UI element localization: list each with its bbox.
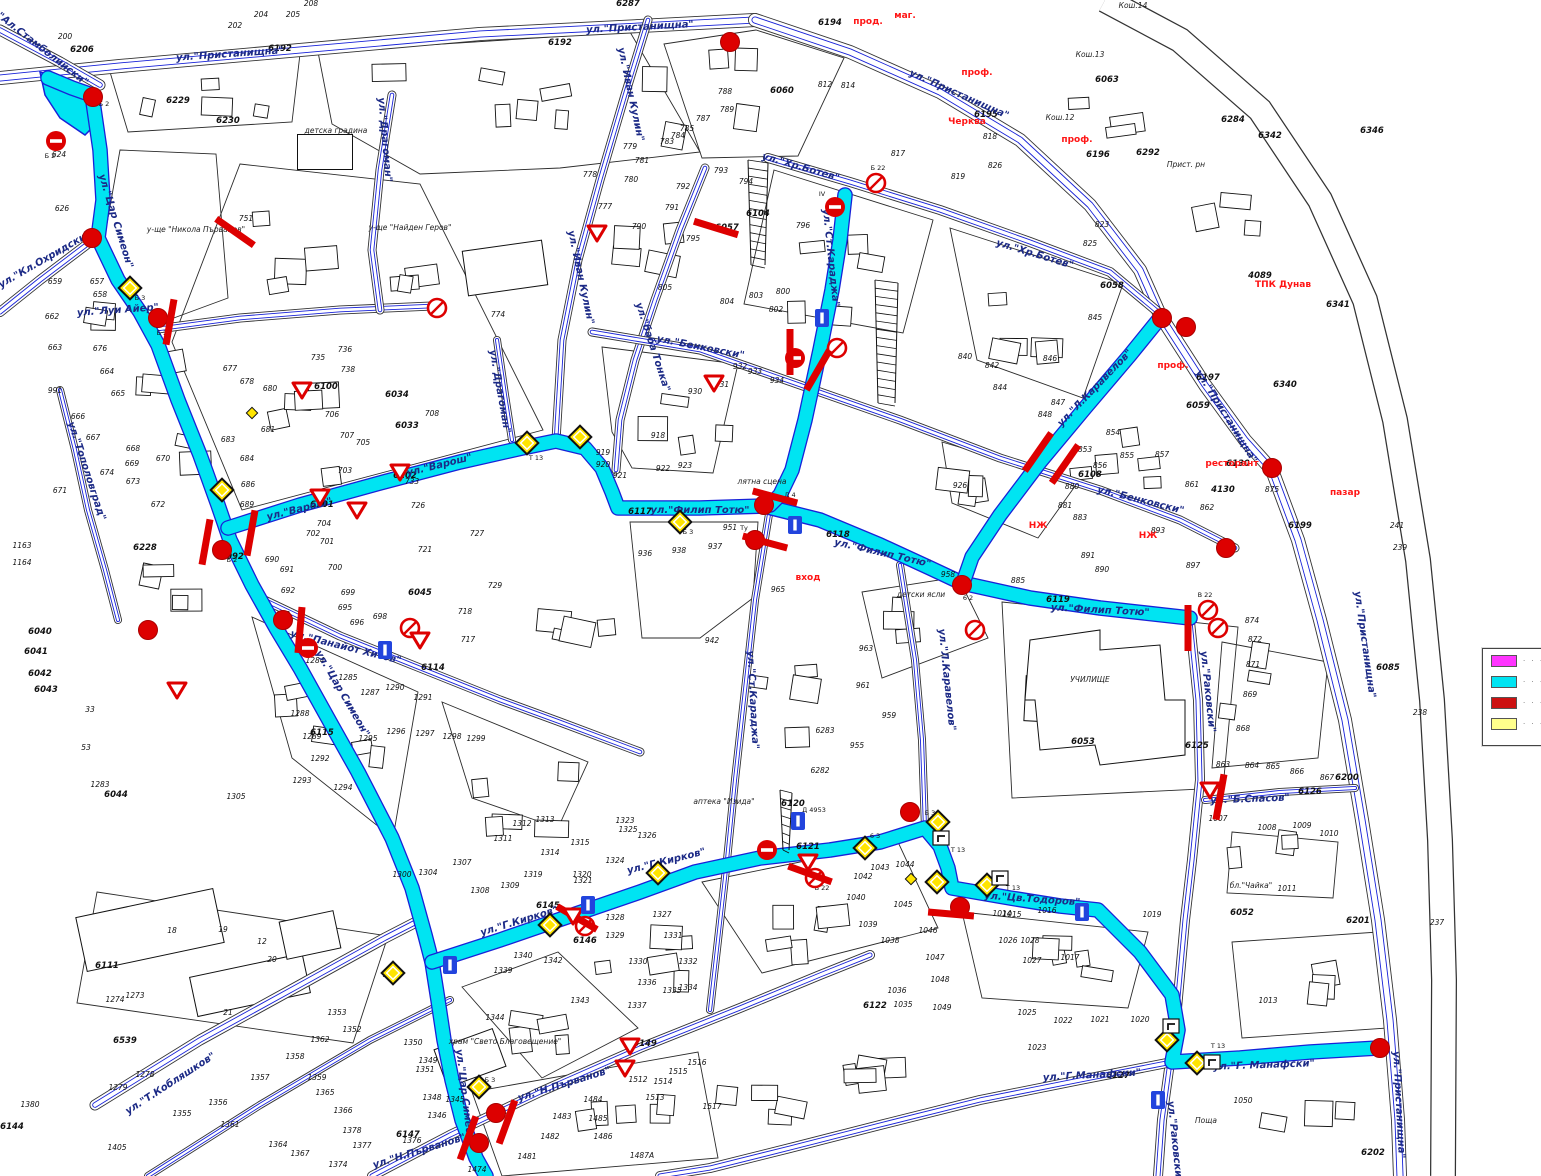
- road-code: 6117: [628, 507, 652, 517]
- stairs-step: [876, 313, 897, 316]
- info-sign-bar: [383, 645, 386, 656]
- parcel-number: 1362: [310, 1035, 329, 1044]
- parcel-number: 853: [1078, 445, 1093, 454]
- building: [715, 425, 733, 442]
- building-large: [76, 889, 224, 972]
- parcel-number: 1342: [543, 956, 562, 965]
- building: [369, 746, 385, 769]
- building: [1304, 1100, 1333, 1126]
- parcel-number: 738: [341, 365, 356, 374]
- parcel-number: 867: [1320, 773, 1335, 782]
- road-code: 4130: [1210, 485, 1235, 495]
- building: [1247, 670, 1271, 684]
- parcel-number: 774: [491, 310, 506, 319]
- info-sign-bar: [793, 520, 796, 531]
- parcel-number: 33: [85, 705, 95, 714]
- prohibition-sign-icon: [83, 229, 102, 248]
- parcel-number: 1321: [573, 876, 592, 885]
- building: [1259, 1113, 1287, 1132]
- parcel-number: 1343: [570, 996, 589, 1005]
- parcel-number: 1405: [107, 1143, 126, 1152]
- road-code: 6342: [1258, 131, 1282, 141]
- parcel-number: 751: [239, 214, 253, 223]
- parcel-number: 1515: [668, 1067, 687, 1076]
- road-code: 6125: [1185, 741, 1209, 751]
- give-way-sign-icon: [616, 1061, 634, 1076]
- red-annotation: пазар: [1330, 488, 1361, 498]
- sign-code-label: Т 13: [528, 454, 543, 462]
- stairs-step: [878, 395, 895, 398]
- parcel-number: 1046: [918, 926, 937, 935]
- building: [1218, 703, 1236, 720]
- parcel-number: 918: [651, 431, 666, 440]
- red-annotation: Черква: [948, 117, 986, 127]
- prohibition-sign-icon: [213, 541, 232, 560]
- parcel-number: 1021: [1090, 1015, 1109, 1024]
- poi-label: Кош.14: [1119, 1, 1148, 10]
- parcel-number: 1038: [880, 936, 899, 945]
- parcel-number: 1380: [20, 1100, 39, 1109]
- sign-code-label: Б 3: [135, 294, 146, 302]
- sign-code-label: IV: [819, 190, 826, 198]
- stairs-step: [877, 346, 897, 349]
- parcel-number: 678: [240, 377, 255, 386]
- mini-marker-icon: [246, 407, 257, 418]
- building: [735, 48, 758, 71]
- parcel-number: 1378: [342, 1126, 361, 1135]
- street-name-label: ул."Л.Каравелов": [1056, 348, 1135, 429]
- red-annotation: маг.: [894, 11, 916, 21]
- sign-code-label: Б 22: [871, 164, 886, 172]
- road-code: 6287: [616, 0, 640, 9]
- building: [595, 960, 612, 974]
- building: [988, 292, 1007, 306]
- parcel-number: 1010: [1319, 829, 1338, 838]
- parcel-number: 695: [338, 603, 353, 612]
- road-code: 6147: [396, 1130, 420, 1140]
- parcel-number: 861: [1185, 480, 1199, 489]
- parcel-number: 1039: [858, 920, 877, 929]
- stairs-step: [782, 833, 790, 836]
- legend-item: · · · · · ·: [1491, 652, 1541, 670]
- red-annotation: ТПК Дунав: [1255, 280, 1311, 290]
- parcel-number: 204: [254, 10, 269, 19]
- parcel-number: 803: [749, 291, 764, 300]
- parcel-number: 938: [672, 546, 687, 555]
- legend-item: · · · · ·: [1491, 715, 1541, 733]
- parcel-number: 1326: [637, 831, 656, 840]
- parcel-number: 705: [356, 438, 371, 447]
- building: [1192, 203, 1220, 232]
- parcel-number: 936: [638, 549, 653, 558]
- parcel-number: 1483: [552, 1112, 571, 1121]
- building-large: [462, 240, 547, 296]
- parcel-number: 865: [1266, 762, 1281, 771]
- parcel-number: 202: [228, 21, 243, 30]
- parcel-number: 626: [55, 204, 70, 213]
- map-drawing: 2002022042052087516246266596576586626636…: [0, 0, 1541, 1176]
- parcel-number: 683: [221, 435, 236, 444]
- building: [516, 99, 538, 120]
- city-traffic-map[interactable]: 2002022042052087516246266596576586626636…: [0, 0, 1541, 1176]
- no-entry-bar: [761, 848, 773, 852]
- building: [597, 619, 616, 637]
- road-code: 6053: [1071, 737, 1095, 747]
- mini-marker-icon: [905, 873, 916, 884]
- parcel-number: 671: [53, 486, 67, 495]
- road-code: 6196: [1086, 150, 1110, 160]
- parcel-number: 1516: [687, 1058, 706, 1067]
- parcel-number: 840: [958, 352, 973, 361]
- stairs-step: [783, 841, 790, 844]
- building: [799, 240, 825, 254]
- road-code: 6292: [1136, 148, 1160, 158]
- parcel-number: 1027: [1022, 956, 1041, 965]
- parcel-number: 1278: [135, 1070, 154, 1079]
- parcel-number: 1486: [593, 1132, 612, 1141]
- parcel-number: 854: [1106, 428, 1121, 437]
- parcel-number: 1366: [333, 1106, 352, 1115]
- parcel-number: 926: [953, 481, 968, 490]
- parcel-number: 855: [1120, 451, 1135, 460]
- stairs-step: [781, 816, 790, 819]
- sign-code-label: Т 13: [950, 846, 965, 854]
- parcel-number: 1293: [292, 776, 311, 785]
- parcel-number: 804: [720, 297, 735, 306]
- road-code: 6121: [796, 842, 820, 852]
- road-code: 6034: [385, 390, 409, 400]
- legend-swatch-icon: [1491, 676, 1517, 688]
- building: [1144, 476, 1162, 488]
- parcel-number: 1279: [108, 1083, 127, 1092]
- parcel-number: 880: [1065, 482, 1080, 491]
- road-code: 6341: [1326, 300, 1350, 310]
- road-code: 6206: [70, 45, 94, 55]
- parcel-number: 18: [167, 926, 177, 935]
- parcel-number: 1485: [588, 1114, 607, 1123]
- prohibition-sign-icon: [1153, 309, 1172, 328]
- parcel-number: 856: [1093, 461, 1108, 470]
- parcel-number: 681: [261, 425, 275, 434]
- parcel-number: 802: [769, 305, 784, 314]
- parcel-number: 848: [1038, 410, 1053, 419]
- parcel-number: 667: [86, 433, 101, 442]
- parcel-number: 665: [111, 389, 126, 398]
- give-way-sign-icon: [348, 503, 366, 518]
- parcel-number: 796: [796, 221, 811, 230]
- parcel-number: 818: [983, 132, 998, 141]
- parcel-number: 959: [882, 711, 897, 720]
- info-sign-bar: [820, 313, 823, 324]
- prohibition-sign-icon: [139, 621, 158, 640]
- prohibition-sign-icon: [953, 576, 972, 595]
- parcel-number: 1329: [605, 931, 624, 940]
- building: [790, 675, 822, 704]
- parcel-number: 1288: [290, 709, 309, 718]
- parcel-number: 1019: [1142, 910, 1161, 919]
- building: [1307, 982, 1329, 1006]
- parcel-number: 1043: [870, 863, 889, 872]
- legend-item: · · · · ·: [1491, 673, 1541, 691]
- parcel-number: 794: [739, 177, 754, 186]
- street-name-label: ул."Л.Каравелов": [936, 628, 958, 731]
- parcel-number: 1374: [328, 1160, 347, 1169]
- parcel-number: 795: [686, 234, 701, 243]
- stairs-step: [748, 168, 768, 171]
- give-way-sign-icon: [411, 633, 429, 648]
- road-code: 6033: [395, 421, 419, 431]
- red-annotation: вход: [796, 573, 821, 583]
- parcel-number: 1315: [570, 838, 589, 847]
- sign-code-label: 6 2: [963, 594, 973, 602]
- parcel-number: 845: [1088, 313, 1103, 322]
- parcel-number: 708: [425, 409, 440, 418]
- road-code: 6041: [24, 647, 48, 657]
- stairs-step: [875, 296, 897, 299]
- stairs-step: [876, 337, 896, 340]
- parcel-number: 857: [1155, 450, 1170, 459]
- stairs-lane: [895, 283, 898, 403]
- parcel-number: 1513: [645, 1093, 664, 1102]
- parcel-number: 676: [93, 344, 108, 353]
- parcel-number: 237: [1430, 918, 1445, 927]
- stairs-step: [878, 403, 895, 406]
- prohibition-sign-icon: [149, 309, 168, 328]
- info-sign-bar: [1156, 1095, 1159, 1106]
- parcel-number: 1298: [442, 732, 461, 741]
- parcel-number: 885: [1011, 576, 1026, 585]
- parcel-number: 1025: [1017, 1008, 1036, 1017]
- prohibition-sign-icon: [1177, 318, 1196, 337]
- building: [1081, 966, 1113, 982]
- parcel-number: 727: [470, 529, 485, 538]
- building: [559, 616, 596, 647]
- prohibition-sign-icon: [274, 611, 293, 630]
- building: [709, 49, 729, 69]
- building: [267, 277, 289, 295]
- parcel-number: 6282: [810, 766, 829, 775]
- no-entry-bar: [829, 205, 841, 209]
- parcel-number: 1296: [386, 727, 405, 736]
- building: [765, 936, 792, 951]
- parcel-number: 793: [714, 166, 729, 175]
- parcel-number: 1336: [637, 978, 656, 987]
- parcel-number: 1353: [327, 1008, 346, 1017]
- building: [790, 939, 808, 964]
- parcel-number: 923: [678, 461, 693, 470]
- parcel-number: 1328: [605, 913, 624, 922]
- sign-code-label: 6 3: [870, 832, 880, 840]
- parcel-number: 1367: [290, 1149, 309, 1158]
- parcel-number: 826: [988, 161, 1003, 170]
- parcel-number: 698: [373, 612, 388, 621]
- road-code: 6199: [1288, 521, 1312, 531]
- parcel-number: 1313: [535, 815, 554, 824]
- parcel-number: 922: [656, 464, 671, 473]
- red-annotation: НЖ: [1139, 531, 1158, 541]
- sign-code-label: Т 13: [1210, 1042, 1225, 1050]
- stairs-step: [749, 192, 767, 195]
- parcel-number: 1358: [285, 1052, 304, 1061]
- building: [844, 1069, 876, 1083]
- parcel-number: 691: [280, 565, 294, 574]
- parcel-number: 684: [240, 454, 255, 463]
- parcel-number: 53: [81, 743, 91, 752]
- parcel-number: 241: [1390, 521, 1404, 530]
- parcel-number: 669: [125, 459, 140, 468]
- sign-code-label: Ту: [739, 524, 748, 532]
- parcel-number: 1044: [895, 860, 914, 869]
- parcel-number: 781: [635, 156, 649, 165]
- building: [253, 104, 269, 118]
- parcel-number: 1323: [615, 816, 634, 825]
- building: [752, 1085, 778, 1100]
- building: [787, 301, 805, 323]
- direction-table-sign-icon: [992, 871, 1008, 885]
- parcel-number: 1273: [125, 991, 144, 1000]
- road-code: 6230: [216, 116, 240, 126]
- road-code: 6052: [1230, 908, 1254, 918]
- parcel-number: 937: [708, 542, 723, 551]
- building: [1335, 1102, 1355, 1120]
- building: [252, 211, 270, 226]
- parcel-number: 735: [311, 353, 326, 362]
- stairs-step: [751, 257, 765, 260]
- info-sign-bar: [586, 900, 589, 911]
- sign-code-label: Д 4953: [802, 806, 826, 814]
- building: [1068, 97, 1089, 109]
- road-code: 6200: [1335, 773, 1359, 783]
- road-code: 6144: [0, 1122, 24, 1132]
- parcel-number: 1351: [415, 1065, 434, 1074]
- building: [1220, 192, 1252, 209]
- parcel-number: 721: [418, 545, 432, 554]
- road-code: 6192: [548, 38, 572, 48]
- parcel-number: 1047: [925, 953, 944, 962]
- direction-table-sign-icon: [1163, 1019, 1179, 1033]
- parcel-number: 897: [1186, 561, 1201, 570]
- building: [201, 97, 232, 116]
- parcel-number: 846: [1043, 354, 1058, 363]
- info-sign-bar: [448, 960, 451, 971]
- stairs-lane: [875, 280, 878, 403]
- poi-label: аптека "Изида": [693, 797, 754, 806]
- parcel-number: 1015: [1002, 910, 1021, 919]
- prohibition-sign-icon: [487, 1104, 506, 1123]
- info-sign-bar: [796, 816, 799, 827]
- parcel-number: 883: [1073, 513, 1088, 522]
- stairs-step: [877, 362, 896, 365]
- poi-label: храм "Свето Благовещение": [448, 1037, 562, 1046]
- street-name-label: ул."Пристанищна": [1352, 591, 1378, 699]
- parcel-number: 1016: [1037, 906, 1056, 915]
- parcel-number: 1481: [517, 1152, 536, 1161]
- parcel-number: 703: [338, 466, 353, 475]
- parcel-number: 891: [1081, 551, 1095, 560]
- parcel-number: 704: [317, 519, 332, 528]
- parcel-number: 785: [680, 124, 695, 133]
- stairs-step: [876, 305, 898, 308]
- building-large: [298, 135, 353, 170]
- parcel-number: 1040: [846, 893, 865, 902]
- street-name-label: ул."Раковски": [1165, 1100, 1184, 1176]
- parcel-number: 1324: [605, 856, 624, 865]
- parcel-number: 1050: [1233, 1096, 1252, 1105]
- no-entry-bar: [302, 646, 314, 650]
- parcel-number: 1011: [1277, 884, 1296, 893]
- red-annotation: проф.: [1157, 361, 1188, 371]
- give-way-sign-icon: [168, 683, 186, 698]
- building: [785, 727, 810, 748]
- parcel-number: 1361: [220, 1120, 239, 1129]
- parcel-number: 700: [328, 563, 343, 572]
- parcel-number: 717: [461, 635, 476, 644]
- stairs-step: [876, 321, 897, 324]
- building: [678, 435, 695, 455]
- building: [172, 595, 188, 609]
- parcel-number: 686: [241, 480, 256, 489]
- road-code: 6194: [818, 18, 842, 28]
- parcel-number: 1308: [470, 886, 489, 895]
- parcel-number: 670: [156, 454, 171, 463]
- poi-label: Кош.13: [1076, 50, 1105, 59]
- parcel-number: 690: [265, 555, 280, 564]
- priority-road-sign-icon: [382, 962, 405, 985]
- parcel-number: 817: [891, 149, 906, 158]
- parcel-number: 934: [770, 376, 785, 385]
- building: [140, 98, 156, 117]
- building: [397, 275, 413, 293]
- parcel-number: 1334: [678, 983, 697, 992]
- parcel-number: 812: [818, 80, 833, 89]
- parcel-number: 778: [583, 170, 598, 179]
- road-code: 6122: [863, 1001, 887, 1011]
- parcel-number: 1045: [893, 900, 912, 909]
- parcel-number: 842: [985, 361, 1000, 370]
- poi-label: Поща: [1195, 1116, 1217, 1125]
- road-code: 6201: [1346, 916, 1370, 926]
- road-code: 6043: [34, 685, 58, 695]
- parcel-number: 1346: [427, 1111, 446, 1120]
- parcel-number: 662: [45, 312, 60, 321]
- road-code: 6229: [166, 96, 190, 106]
- parcel-number: 1357: [250, 1073, 269, 1082]
- parcel-number: 1305: [226, 792, 245, 801]
- parcel-number: 1297: [415, 729, 434, 738]
- road-code: 6108: [1078, 470, 1102, 480]
- red-annotation: проф.: [1061, 135, 1092, 145]
- street-name-label: ул."Филип Тотю": [651, 505, 750, 516]
- parcel-number: 1337: [627, 1001, 646, 1010]
- parcel-number: 1299: [466, 734, 485, 743]
- parcel-number: 1020: [1130, 1015, 1149, 1024]
- parcel-number: 1292: [310, 754, 329, 763]
- red-annotation: проф.: [961, 68, 992, 78]
- parcel-number: 659: [48, 277, 63, 286]
- parcel-number: 825: [1083, 239, 1098, 248]
- parcel-number: 668: [126, 444, 141, 453]
- legend-swatch-icon: [1491, 718, 1517, 730]
- prohibition-sign-icon: [1263, 459, 1282, 478]
- parcel-number: 1049: [932, 1003, 951, 1012]
- parcel-number: 1484: [583, 1095, 602, 1104]
- prohibition-sign-icon: [901, 803, 920, 822]
- parcel-number: 208: [304, 0, 319, 8]
- parcel-number: 1514: [653, 1077, 672, 1086]
- parcel-number: 1026: [998, 936, 1017, 945]
- parcel-number: 1274: [105, 995, 124, 1004]
- parcel-block: [318, 32, 700, 174]
